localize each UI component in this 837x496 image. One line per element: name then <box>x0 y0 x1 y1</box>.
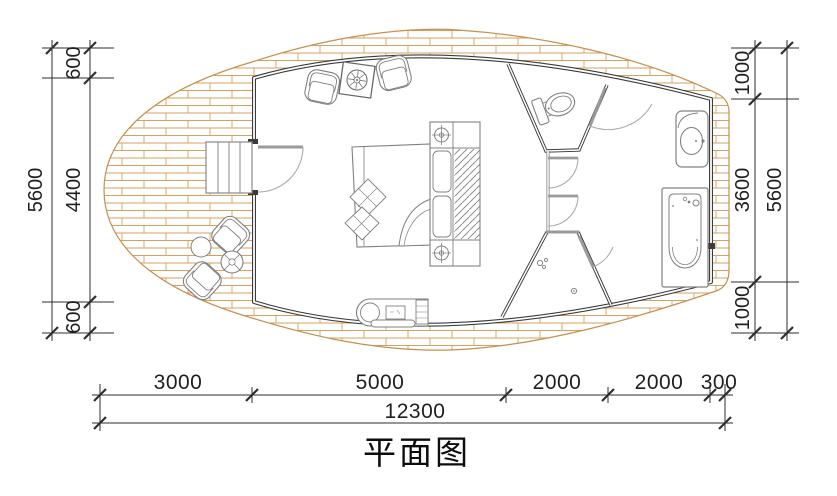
drawing-title: 平面图 <box>363 434 471 471</box>
dim-right-1000-top: 1000 <box>732 51 754 96</box>
outdoor-round-table <box>221 251 243 273</box>
dim-bottom-2000-b: 2000 <box>635 371 684 394</box>
dim-left-total: 5600 <box>25 168 47 213</box>
side-table <box>191 237 211 257</box>
dim-right-3600: 3600 <box>732 168 754 213</box>
headboard-cabinet <box>430 122 480 266</box>
dim-left-600-top: 600 <box>63 46 85 79</box>
dim-left-600-bottom: 600 <box>63 300 85 333</box>
dim-right-1000-bottom: 1000 <box>732 286 754 331</box>
dim-bottom-5000: 5000 <box>356 371 405 394</box>
entry-stairs <box>206 142 252 193</box>
bed-pillow <box>433 151 451 192</box>
dim-bottom-total: 12300 <box>385 400 446 423</box>
headboard-hatch <box>455 149 480 239</box>
plant-table <box>339 62 375 98</box>
floor-plan-drawing: 600 4400 600 5600 1000 3600 1000 5600 30… <box>0 0 837 496</box>
bed-pillow <box>433 196 451 237</box>
dim-bottom-300: 300 <box>701 371 738 394</box>
washbasin <box>676 111 708 167</box>
chaise-lounge <box>357 299 429 327</box>
dim-bottom-2000-a: 2000 <box>533 371 582 394</box>
double-bed <box>345 144 431 247</box>
bathtub <box>662 188 708 287</box>
floor-plan-page: 600 4400 600 5600 1000 3600 1000 5600 30… <box>0 0 837 496</box>
dim-bottom-3000: 3000 <box>154 371 203 394</box>
dim-left-4400: 4400 <box>63 168 85 213</box>
armchair <box>303 68 341 106</box>
dim-right-total: 5600 <box>764 168 786 213</box>
